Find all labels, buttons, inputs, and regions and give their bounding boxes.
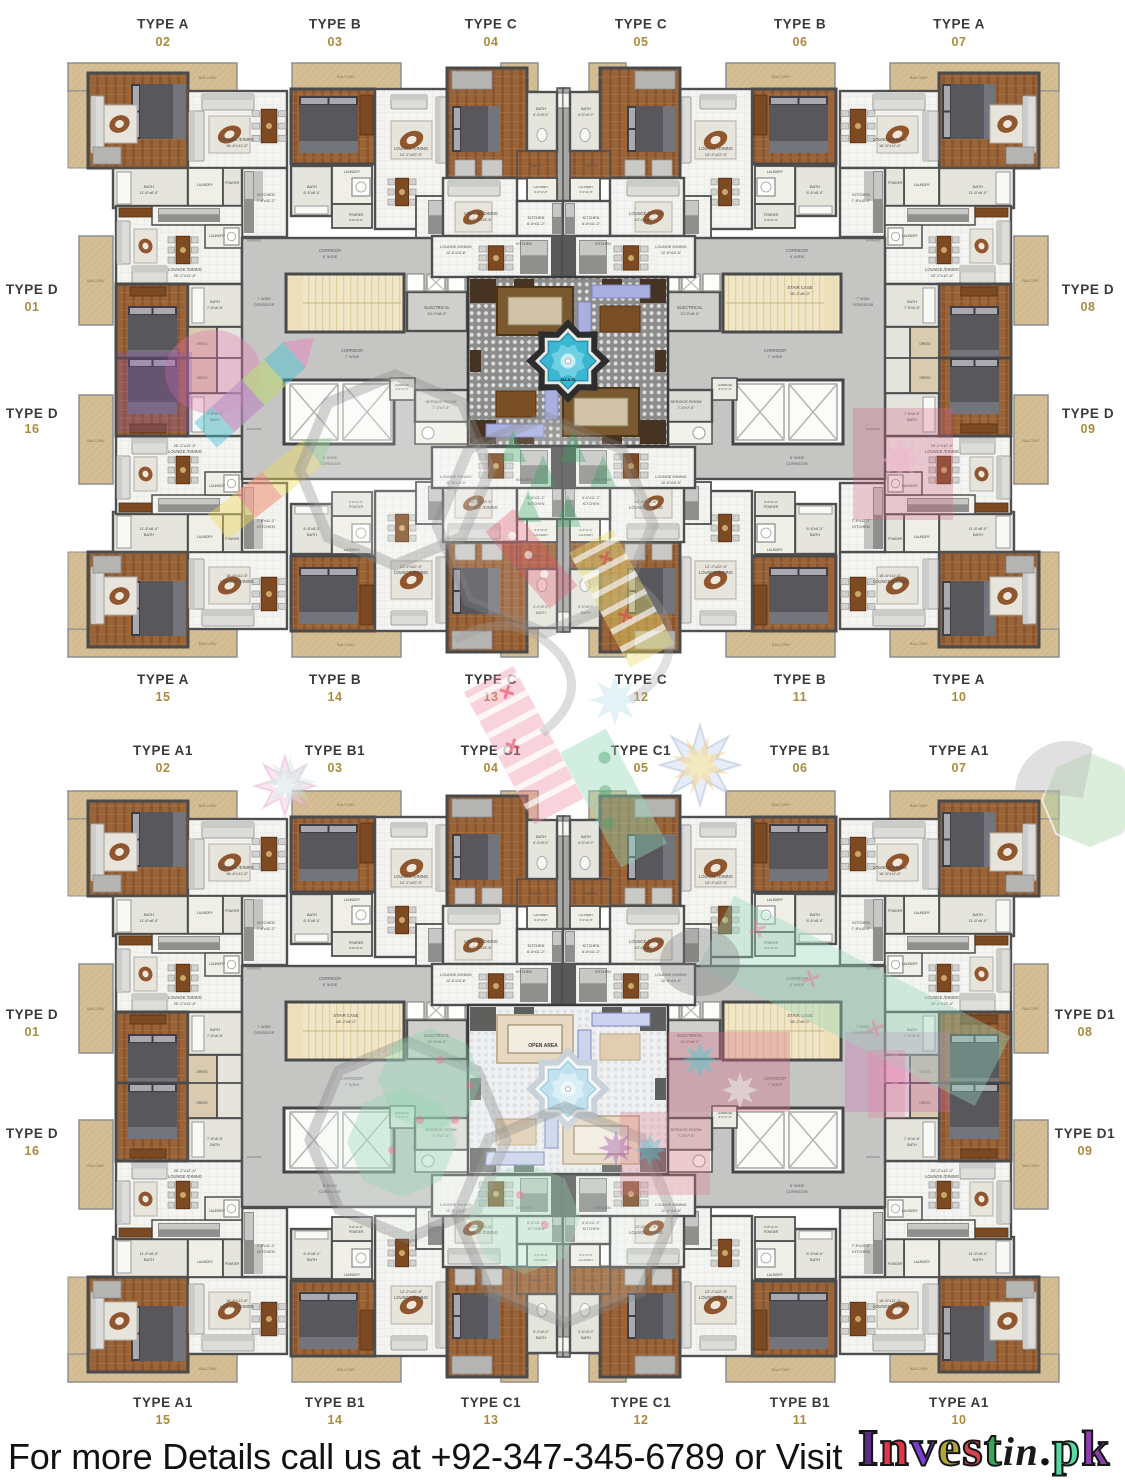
svg-text:7'-8"x11'-2": 7'-8"x11'-2" xyxy=(257,199,277,203)
svg-text:05: 05 xyxy=(633,761,648,775)
svg-text:6'-6"x11'-2": 6'-6"x11'-2" xyxy=(527,950,546,954)
svg-text:BATH: BATH xyxy=(973,532,983,537)
svg-text:11'-6"x8'-0": 11'-6"x8'-0" xyxy=(969,1252,989,1256)
svg-text:6'-0"x2'-9": 6'-0"x2'-9" xyxy=(580,190,593,194)
svg-text:TYPE B: TYPE B xyxy=(774,672,826,687)
svg-text:POWDER: POWDER xyxy=(888,181,903,185)
svg-text:11'-6"x8'-0": 11'-6"x8'-0" xyxy=(140,191,160,195)
svg-text:LAUNDRY: LAUNDRY xyxy=(197,911,214,915)
svg-text:7'-8"x11'-2": 7'-8"x11'-2" xyxy=(257,1244,277,1248)
svg-text:6'-0"x2'-9": 6'-0"x2'-9" xyxy=(535,190,548,194)
svg-text:BATH: BATH xyxy=(581,1336,591,1340)
svg-text:KITCHEN: KITCHEN xyxy=(257,524,275,529)
svg-text:01: 01 xyxy=(24,1025,39,1039)
svg-text:5'-8"x4'-6": 5'-8"x4'-6" xyxy=(764,500,778,504)
svg-text:BALCONY: BALCONY xyxy=(1022,279,1040,283)
svg-text:LOUNGE /DINING: LOUNGE /DINING xyxy=(464,939,498,944)
svg-text:LAUNDRY: LAUNDRY xyxy=(197,535,214,539)
svg-text:LAUNDRY: LAUNDRY xyxy=(579,913,594,917)
svg-text:BALCONY: BALCONY xyxy=(910,804,929,808)
svg-text:LOUNGE /DINING: LOUNGE /DINING xyxy=(168,995,202,1000)
svg-text:BATH: BATH xyxy=(307,1257,317,1262)
svg-text:6'-0"x2'-9": 6'-0"x2'-9" xyxy=(580,918,593,922)
svg-text:BATH: BATH xyxy=(144,184,154,189)
svg-text:LOUNGE /DINING: LOUNGE /DINING xyxy=(925,267,959,272)
svg-text:BALCONY: BALCONY xyxy=(1022,439,1040,443)
svg-text:5'-8"x4'-6": 5'-8"x4'-6" xyxy=(349,946,363,950)
svg-text:TYPE A1: TYPE A1 xyxy=(133,1395,193,1410)
svg-text:DRESS: DRESS xyxy=(197,1070,208,1074)
svg-text:BALCONY: BALCONY xyxy=(87,439,105,443)
svg-text:CORRIDOR: CORRIDOR xyxy=(319,248,341,253)
svg-text:LAUNDRY: LAUNDRY xyxy=(767,548,784,552)
svg-text:01: 01 xyxy=(24,300,39,314)
svg-text:BATH: BATH xyxy=(581,107,591,111)
svg-text:LAUNDRY: LAUNDRY xyxy=(209,484,226,488)
svg-text:06: 06 xyxy=(792,761,807,775)
svg-text:6'-0"x9'-0": 6'-0"x9'-0" xyxy=(533,113,549,117)
svg-text:DRESS: DRESS xyxy=(920,376,931,380)
svg-text:11: 11 xyxy=(793,1413,807,1427)
svg-text:CORRIDOR: CORRIDOR xyxy=(786,248,808,253)
svg-text:TYPE D1: TYPE D1 xyxy=(1055,1126,1115,1141)
svg-text:KITCHEN: KITCHEN xyxy=(528,944,545,948)
svg-text:POWDER: POWDER xyxy=(888,909,903,913)
svg-text:6'-0"x9'-0": 6'-0"x9'-0" xyxy=(578,1330,594,1334)
svg-text:12'-6"x15'-6": 12'-6"x15'-6" xyxy=(661,481,682,485)
svg-text:6'-0"x9'-0": 6'-0"x9'-0" xyxy=(533,841,549,845)
svg-text:BALCONY: BALCONY xyxy=(598,642,616,646)
svg-text:TYPE B: TYPE B xyxy=(774,17,826,32)
svg-text:BALCONY: BALCONY xyxy=(1022,1164,1040,1168)
svg-text:BALCONY: BALCONY xyxy=(199,642,218,646)
svg-text:09: 09 xyxy=(1077,1144,1092,1158)
svg-text:12'-2"x22'-9": 12'-2"x22'-9" xyxy=(400,1289,423,1294)
svg-text:TYPE D1: TYPE D1 xyxy=(1055,1007,1115,1022)
svg-text:20'-2"x12'-4": 20'-2"x12'-4" xyxy=(174,1001,197,1006)
svg-text:11'-6"x8'-0": 11'-6"x8'-0" xyxy=(969,919,989,923)
svg-text:CORRIDOR: CORRIDOR xyxy=(764,348,786,353)
svg-text:TYPE A: TYPE A xyxy=(137,17,189,32)
svg-text:12'-2"x22'-9": 12'-2"x22'-9" xyxy=(705,152,728,157)
svg-text:4'-0"x7'-0": 4'-0"x7'-0" xyxy=(719,387,732,391)
svg-text:LOUNGE /DINING: LOUNGE /DINING xyxy=(220,1304,254,1309)
svg-text:TYPE D: TYPE D xyxy=(1062,406,1114,421)
svg-text:TYPE B1: TYPE B1 xyxy=(770,743,830,758)
svg-text:TYPE B1: TYPE B1 xyxy=(305,743,365,758)
svg-text:KITCHEN: KITCHEN xyxy=(583,944,600,948)
svg-text:DRESS: DRESS xyxy=(585,164,597,168)
svg-text:15: 15 xyxy=(155,1413,170,1427)
svg-text:KITCHEN: KITCHEN xyxy=(595,242,611,246)
svg-text:LAUNDRY: LAUNDRY xyxy=(534,913,549,917)
svg-text:TYPE A: TYPE A xyxy=(137,672,189,687)
svg-text:DRESS: DRESS xyxy=(530,164,542,168)
svg-text:13: 13 xyxy=(483,1413,498,1427)
svg-text:TYPE D: TYPE D xyxy=(6,1126,58,1141)
svg-text:LOUNGE /DINING: LOUNGE /DINING xyxy=(873,865,907,870)
svg-text:DRESS: DRESS xyxy=(530,892,542,896)
svg-text:6' WIDE: 6' WIDE xyxy=(790,254,805,259)
svg-text:BALCONY: BALCONY xyxy=(337,643,356,647)
svg-text:18'-2"x8'-0": 18'-2"x8'-0" xyxy=(790,291,811,296)
svg-text:7'-6"x6'-6": 7'-6"x6'-6" xyxy=(207,306,224,310)
svg-text:04: 04 xyxy=(483,35,498,49)
svg-text:BALCONY: BALCONY xyxy=(598,1367,616,1371)
svg-text:7' WIDE: 7' WIDE xyxy=(345,354,360,359)
svg-text:10'-0"x8'-0": 10'-0"x8'-0" xyxy=(427,312,447,316)
svg-text:TYPE B: TYPE B xyxy=(309,17,361,32)
svg-text:BALCONY: BALCONY xyxy=(199,1367,218,1371)
svg-text:BATH: BATH xyxy=(536,107,546,111)
svg-text:20'-2"x12'-4": 20'-2"x12'-4" xyxy=(931,273,954,278)
svg-text:BALCONY: BALCONY xyxy=(910,1367,929,1371)
svg-text:08: 08 xyxy=(1077,1025,1092,1039)
svg-text:BATH: BATH xyxy=(810,1257,820,1262)
svg-text:LOUNGE /DINING: LOUNGE /DINING xyxy=(873,1304,907,1309)
svg-text:8' WIDE: 8' WIDE xyxy=(790,1183,805,1188)
svg-text:TYPE A: TYPE A xyxy=(933,17,985,32)
svg-text:BALCONY: BALCONY xyxy=(87,1164,105,1168)
svg-text:16'-6"x11'-6": 16'-6"x11'-6" xyxy=(879,1298,902,1303)
svg-text:STAIR CASE: STAIR CASE xyxy=(787,285,812,290)
svg-text:LAUNDRY: LAUNDRY xyxy=(902,1209,919,1213)
svg-text:5'-8"x4'-6": 5'-8"x4'-6" xyxy=(349,218,363,222)
svg-text:KITCHEN: KITCHEN xyxy=(516,970,532,974)
svg-text:LOUNGE /DINING: LOUNGE /DINING xyxy=(394,1295,428,1300)
svg-text:LAUNDRY: LAUNDRY xyxy=(902,962,919,966)
svg-text:BALCONY: BALCONY xyxy=(199,804,218,808)
svg-text:LAUNDRY: LAUNDRY xyxy=(344,170,361,174)
svg-text:7' WIDE: 7' WIDE xyxy=(856,297,870,301)
svg-text:BATH: BATH xyxy=(144,912,154,917)
svg-text:BALCONY: BALCONY xyxy=(910,642,929,646)
svg-text:LOUNGE /DINING: LOUNGE /DINING xyxy=(220,579,254,584)
svg-text:BALCONY: BALCONY xyxy=(199,76,218,80)
svg-text:CORRIDOR: CORRIDOR xyxy=(853,303,874,307)
svg-text:DRESS: DRESS xyxy=(585,892,597,896)
svg-text:LAUNDRY: LAUNDRY xyxy=(914,183,931,187)
svg-text:14: 14 xyxy=(327,690,342,704)
svg-text:KITCHEN: KITCHEN xyxy=(852,524,870,529)
svg-text:20'-2"x12'-4": 20'-2"x12'-4" xyxy=(174,1168,197,1173)
svg-text:POWDER: POWDER xyxy=(764,1230,779,1234)
svg-text:12'-2"x22'-9": 12'-2"x22'-9" xyxy=(400,880,423,885)
svg-text:BALCONY: BALCONY xyxy=(910,76,929,80)
svg-text:16'-6"x11'-6": 16'-6"x11'-6" xyxy=(879,143,902,148)
svg-text:LAUNDRY: LAUNDRY xyxy=(344,1273,361,1277)
svg-text:LOUNGE /DINING: LOUNGE /DINING xyxy=(925,1174,959,1179)
svg-text:CORRIDOR: CORRIDOR xyxy=(341,348,363,353)
svg-text:LOUNGE /DINING: LOUNGE /DINING xyxy=(655,475,686,479)
svg-text:DRESS: DRESS xyxy=(920,342,931,346)
svg-text:BALCONY: BALCONY xyxy=(1022,1007,1040,1011)
svg-text:LAUNDRY: LAUNDRY xyxy=(914,1260,931,1264)
svg-text:02: 02 xyxy=(155,761,170,775)
svg-text:POWDER: POWDER xyxy=(888,537,903,541)
svg-text:TYPE C: TYPE C xyxy=(465,17,517,32)
svg-text:7'-6"x6'-6": 7'-6"x6'-6" xyxy=(207,1137,224,1141)
svg-text:BALCONY: BALCONY xyxy=(772,75,791,79)
svg-text:5'-8"x4'-6": 5'-8"x4'-6" xyxy=(349,1225,363,1229)
svg-text:6'-0"x2'-9": 6'-0"x2'-9" xyxy=(535,918,548,922)
svg-text:7'-6"x6'-6": 7'-6"x6'-6" xyxy=(207,1034,224,1038)
svg-text:LOUNGE /DINING: LOUNGE /DINING xyxy=(699,570,733,575)
svg-text:LOUNGE /DINING: LOUNGE /DINING xyxy=(168,449,202,454)
svg-text:7' WIDE: 7' WIDE xyxy=(257,1025,271,1029)
svg-text:BATH: BATH xyxy=(536,1336,546,1340)
svg-text:BATH: BATH xyxy=(973,1257,983,1262)
svg-text:7'-8"x11'-2": 7'-8"x11'-2" xyxy=(852,199,872,203)
svg-text:12'-2"x22'-9": 12'-2"x22'-9" xyxy=(705,880,728,885)
svg-text:CORRIDOR: CORRIDOR xyxy=(786,461,808,466)
svg-text:KITCHEN: KITCHEN xyxy=(528,216,545,220)
svg-text:LOUNGE /DINING: LOUNGE /DINING xyxy=(699,874,733,879)
svg-text:11: 11 xyxy=(793,690,807,704)
svg-text:TYPE A1: TYPE A1 xyxy=(929,1395,989,1410)
svg-text:18'-2"x8'-0": 18'-2"x8'-0" xyxy=(336,1019,357,1024)
svg-text:11'-6"x8'-0": 11'-6"x8'-0" xyxy=(969,527,989,531)
svg-text:LOUNGE /DINING: LOUNGE /DINING xyxy=(629,211,663,216)
svg-text:11'-6"x8'-0": 11'-6"x8'-0" xyxy=(140,527,160,531)
svg-text:DRESS: DRESS xyxy=(197,1101,208,1105)
svg-text:7' WIDE: 7' WIDE xyxy=(768,354,783,359)
svg-text:10: 10 xyxy=(951,690,966,704)
svg-text:BATH: BATH xyxy=(307,532,317,537)
svg-text:MAJLIS: MAJLIS xyxy=(561,377,576,382)
svg-text:LOUNGE /DINING: LOUNGE /DINING xyxy=(220,137,254,142)
svg-text:ENTRANCE: ENTRANCE xyxy=(247,968,261,971)
svg-text:11'-6"x8'-0": 11'-6"x8'-0" xyxy=(140,919,160,923)
svg-text:LOUNGE /DINING: LOUNGE /DINING xyxy=(220,865,254,870)
svg-text:TYPE D: TYPE D xyxy=(6,282,58,297)
svg-text:12'-6"x15'-6": 12'-6"x15'-6" xyxy=(470,217,493,222)
svg-text:12'-6"x15'-6": 12'-6"x15'-6" xyxy=(446,251,467,255)
svg-text:07: 07 xyxy=(951,761,966,775)
svg-text:POWDER: POWDER xyxy=(888,1262,903,1266)
svg-text:KITCHEN: KITCHEN xyxy=(516,242,532,246)
svg-text:20'-2"x12'-4": 20'-2"x12'-4" xyxy=(174,273,197,278)
svg-text:16'-6"x11'-6": 16'-6"x11'-6" xyxy=(226,1298,249,1303)
svg-text:6'-0"x9'-0": 6'-0"x9'-0" xyxy=(578,841,594,845)
svg-text:LOUNGE /DINING: LOUNGE /DINING xyxy=(394,570,428,575)
svg-text:BATH: BATH xyxy=(810,532,820,537)
svg-text:LOUNGE /DINING: LOUNGE /DINING xyxy=(699,146,733,151)
svg-text:LOUNGE /DINING: LOUNGE /DINING xyxy=(464,211,498,216)
svg-text:4'-0"x7'-0": 4'-0"x7'-0" xyxy=(719,1115,732,1119)
svg-text:6'-6"x8'-0": 6'-6"x8'-0" xyxy=(303,919,321,923)
svg-text:LOUNGE /DINING: LOUNGE /DINING xyxy=(655,245,686,249)
svg-text:TYPE C: TYPE C xyxy=(615,17,667,32)
svg-text:6'-6"x8'-0": 6'-6"x8'-0" xyxy=(806,527,824,531)
svg-text:LAUNDRY: LAUNDRY xyxy=(344,898,361,902)
svg-text:TYPE A1: TYPE A1 xyxy=(929,743,989,758)
svg-text:BATH: BATH xyxy=(144,1257,154,1262)
svg-text:KITCHEN: KITCHEN xyxy=(257,1249,275,1254)
svg-text:LAUNDRY: LAUNDRY xyxy=(197,183,214,187)
svg-text:6'-0"x9'-0": 6'-0"x9'-0" xyxy=(578,113,594,117)
svg-text:BATH: BATH xyxy=(210,1028,220,1032)
svg-text:TYPE D: TYPE D xyxy=(6,406,58,421)
svg-text:12'-2"x22'-9": 12'-2"x22'-9" xyxy=(705,564,728,569)
svg-text:ELECTRICAL: ELECTRICAL xyxy=(677,305,703,310)
svg-text:KITCHEN: KITCHEN xyxy=(852,192,870,197)
svg-text:12'-6"x15'-6": 12'-6"x15'-6" xyxy=(661,251,682,255)
svg-text:POWDER: POWDER xyxy=(764,213,779,217)
svg-text:10'-0"x8'-0": 10'-0"x8'-0" xyxy=(680,312,700,316)
svg-text:6'-6"x8'-0": 6'-6"x8'-0" xyxy=(806,1252,824,1256)
svg-text:5'-8"x4'-6": 5'-8"x4'-6" xyxy=(764,218,778,222)
svg-text:BALCONY: BALCONY xyxy=(772,1368,791,1372)
svg-text:7'-8"x11'-2": 7'-8"x11'-2" xyxy=(257,519,277,523)
svg-text:BALCONY: BALCONY xyxy=(87,279,105,283)
svg-text:03: 03 xyxy=(327,761,342,775)
svg-text:KITCHEN: KITCHEN xyxy=(583,216,600,220)
svg-text:12'-6"x15'-6": 12'-6"x15'-6" xyxy=(635,945,658,950)
svg-text:LOUNGE /DINING: LOUNGE /DINING xyxy=(168,267,202,272)
svg-text:BALCONY: BALCONY xyxy=(87,1007,105,1011)
svg-text:KITCHEN: KITCHEN xyxy=(852,920,870,925)
svg-text:TYPE A1: TYPE A1 xyxy=(133,743,193,758)
svg-text:POWDER: POWDER xyxy=(349,941,364,945)
svg-text:ENTRANCE: ENTRANCE xyxy=(247,1156,261,1159)
svg-text:7'-6"x6'-6": 7'-6"x6'-6" xyxy=(904,306,921,310)
svg-text:BATH: BATH xyxy=(973,184,983,189)
svg-text:6'-6"x11'-2": 6'-6"x11'-2" xyxy=(582,222,601,226)
svg-text:TYPE A: TYPE A xyxy=(933,672,985,687)
svg-text:6'-6"x8'-0": 6'-6"x8'-0" xyxy=(806,191,824,195)
svg-text:06: 06 xyxy=(792,35,807,49)
svg-text:BALCONY: BALCONY xyxy=(772,643,791,647)
svg-text:6'-6"x8'-0": 6'-6"x8'-0" xyxy=(806,919,824,923)
svg-text:BATH: BATH xyxy=(810,184,820,189)
svg-text:CORRIDOR: CORRIDOR xyxy=(254,1031,275,1035)
svg-text:BATH: BATH xyxy=(307,184,317,189)
svg-text:20'-2"x12'-4": 20'-2"x12'-4" xyxy=(174,443,197,448)
svg-text:STAIR CASE: STAIR CASE xyxy=(333,1013,358,1018)
svg-text:LAUNDRY: LAUNDRY xyxy=(209,962,226,966)
svg-text:LAUNDRY: LAUNDRY xyxy=(767,898,784,902)
svg-text:POWDER: POWDER xyxy=(349,1230,364,1234)
svg-text:LAUNDRY: LAUNDRY xyxy=(534,185,549,189)
svg-text:BALCONY: BALCONY xyxy=(511,76,529,80)
svg-text:BATH: BATH xyxy=(973,912,983,917)
svg-text:7'-8"x11'-2": 7'-8"x11'-2" xyxy=(852,1244,872,1248)
svg-text:CORRIDOR: CORRIDOR xyxy=(319,976,341,981)
svg-text:SERVICE ROOM: SERVICE ROOM xyxy=(670,399,701,404)
svg-text:TYPE B1: TYPE B1 xyxy=(770,1395,830,1410)
svg-text:BATH: BATH xyxy=(810,912,820,917)
svg-text:KITCHEN: KITCHEN xyxy=(257,920,275,925)
svg-text:15: 15 xyxy=(155,690,170,704)
svg-text:5'-8"x4'-6": 5'-8"x4'-6" xyxy=(764,1225,778,1229)
svg-text:6' WIDE: 6' WIDE xyxy=(323,982,338,987)
svg-text:BALCONY: BALCONY xyxy=(337,75,356,79)
svg-text:LAUNDRY: LAUNDRY xyxy=(902,234,919,238)
svg-text:6'-6"x8'-0": 6'-6"x8'-0" xyxy=(303,1252,321,1256)
svg-text:BATH: BATH xyxy=(307,912,317,917)
svg-text:BATH: BATH xyxy=(210,300,220,304)
svg-text:7'-4"x7'-0": 7'-4"x7'-0" xyxy=(677,406,695,410)
svg-text:TYPE B: TYPE B xyxy=(309,672,361,687)
svg-text:BATH: BATH xyxy=(907,300,917,304)
svg-text:LAUNDRY: LAUNDRY xyxy=(767,170,784,174)
svg-text:16: 16 xyxy=(24,422,39,436)
svg-text:CORRIDOR: CORRIDOR xyxy=(254,303,275,307)
svg-text:LAUNDRY: LAUNDRY xyxy=(914,535,931,539)
svg-text:16'-6"x11'-6": 16'-6"x11'-6" xyxy=(879,573,902,578)
svg-text:BALCONY: BALCONY xyxy=(511,642,529,646)
svg-text:12'-2"x22'-9": 12'-2"x22'-9" xyxy=(705,1289,728,1294)
svg-text:OPEN AREA: OPEN AREA xyxy=(528,1043,558,1049)
svg-text:12: 12 xyxy=(633,1413,648,1427)
svg-text:ENTRANCE: ENTRANCE xyxy=(866,1156,880,1159)
svg-text:11'-6"x8'-0": 11'-6"x8'-0" xyxy=(140,1252,160,1256)
svg-text:LAUNDRY: LAUNDRY xyxy=(197,1260,214,1264)
svg-text:BALCONY: BALCONY xyxy=(337,1368,356,1372)
svg-text:12'-6"x15'-6": 12'-6"x15'-6" xyxy=(470,945,493,950)
svg-text:8' WIDE: 8' WIDE xyxy=(790,455,805,460)
svg-text:7' WIDE: 7' WIDE xyxy=(257,297,271,301)
svg-text:03: 03 xyxy=(327,35,342,49)
svg-text:6'-6"x8'-0": 6'-6"x8'-0" xyxy=(303,191,321,195)
svg-text:09: 09 xyxy=(1080,422,1095,436)
svg-text:BATH: BATH xyxy=(536,835,546,839)
svg-text:LOUNGE /DINING: LOUNGE /DINING xyxy=(394,874,428,879)
svg-text:16'-6"x11'-6": 16'-6"x11'-6" xyxy=(226,871,249,876)
svg-text:04: 04 xyxy=(483,761,498,775)
svg-text:07: 07 xyxy=(951,35,966,49)
svg-text:BATH: BATH xyxy=(907,1143,917,1147)
svg-text:LAUNDRY: LAUNDRY xyxy=(579,185,594,189)
svg-text:TYPE C1: TYPE C1 xyxy=(611,1395,671,1410)
svg-text:7'-8"x11'-2": 7'-8"x11'-2" xyxy=(852,927,872,931)
svg-text:16'-6"x11'-6": 16'-6"x11'-6" xyxy=(879,871,902,876)
svg-text:12'-6"x15'-6": 12'-6"x15'-6" xyxy=(446,979,467,983)
svg-text:7'-6"x6'-6": 7'-6"x6'-6" xyxy=(904,1137,921,1141)
svg-text:BALCONY: BALCONY xyxy=(772,803,791,807)
svg-text:LAUNDRY: LAUNDRY xyxy=(209,1209,226,1213)
svg-text:BATH: BATH xyxy=(581,835,591,839)
svg-text:BATH: BATH xyxy=(144,532,154,537)
svg-text:6'-0"x9'-0": 6'-0"x9'-0" xyxy=(533,1330,549,1334)
svg-text:BATH: BATH xyxy=(210,1143,220,1147)
svg-text:LOUNGE /DINING: LOUNGE /DINING xyxy=(873,137,907,142)
svg-text:BALCONY: BALCONY xyxy=(598,76,616,80)
svg-text:02: 02 xyxy=(155,35,170,49)
svg-text:ELECTRICAL: ELECTRICAL xyxy=(424,305,450,310)
svg-text:LAUNDRY: LAUNDRY xyxy=(914,911,931,915)
svg-text:LAUNDRY: LAUNDRY xyxy=(209,234,226,238)
svg-text:BALCONY: BALCONY xyxy=(337,803,356,807)
svg-text:12'-6"x15'-6": 12'-6"x15'-6" xyxy=(635,217,658,222)
svg-text:11'-6"x8'-0": 11'-6"x8'-0" xyxy=(969,191,989,195)
svg-text:08: 08 xyxy=(1080,300,1095,314)
svg-text:14: 14 xyxy=(327,1413,342,1427)
svg-text:12'-2"x22'-9": 12'-2"x22'-9" xyxy=(400,152,423,157)
svg-text:16: 16 xyxy=(24,1144,39,1158)
svg-text:POWDER: POWDER xyxy=(764,505,779,509)
svg-text:TYPE B1: TYPE B1 xyxy=(305,1395,365,1410)
svg-text:KITCHEN: KITCHEN xyxy=(595,970,611,974)
svg-text:KITCHEN: KITCHEN xyxy=(257,192,275,197)
svg-text:LOUNGE /DINING: LOUNGE /DINING xyxy=(440,973,471,977)
svg-text:ENTRANCE: ENTRANCE xyxy=(247,240,261,243)
svg-text:LOUNGE /DINING: LOUNGE /DINING xyxy=(168,1174,202,1179)
svg-text:LOUNGE /DINING: LOUNGE /DINING xyxy=(629,939,663,944)
svg-text:7'-8"x11'-2": 7'-8"x11'-2" xyxy=(257,927,277,931)
svg-text:LOUNGE /DINING: LOUNGE /DINING xyxy=(699,1295,733,1300)
